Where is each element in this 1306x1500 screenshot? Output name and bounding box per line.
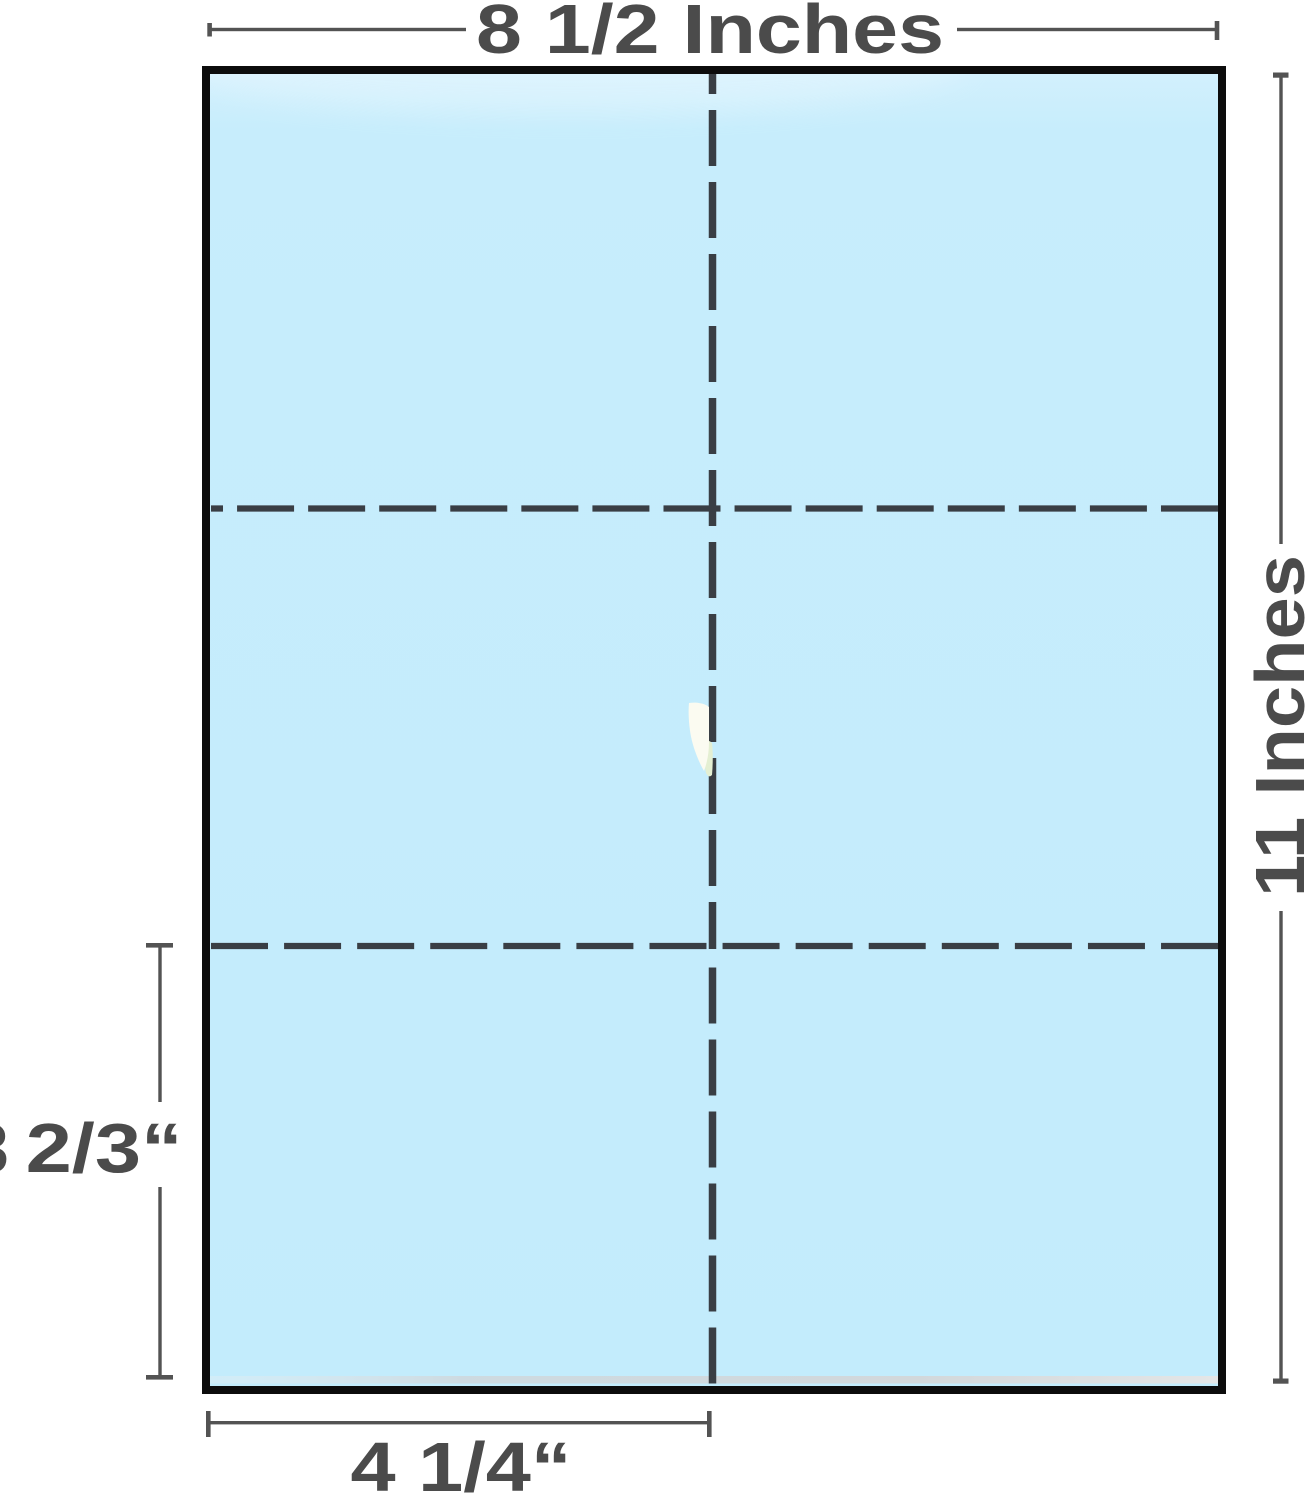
svg-text:11 Inches: 11 Inches (1241, 555, 1306, 897)
svg-text:8 1/2 Inches: 8 1/2 Inches (476, 0, 944, 68)
svg-text:4 1/4“: 4 1/4“ (351, 1428, 572, 1500)
svg-text:2/3“: 2/3“ (26, 1109, 183, 1187)
svg-text:3: 3 (0, 1109, 9, 1187)
